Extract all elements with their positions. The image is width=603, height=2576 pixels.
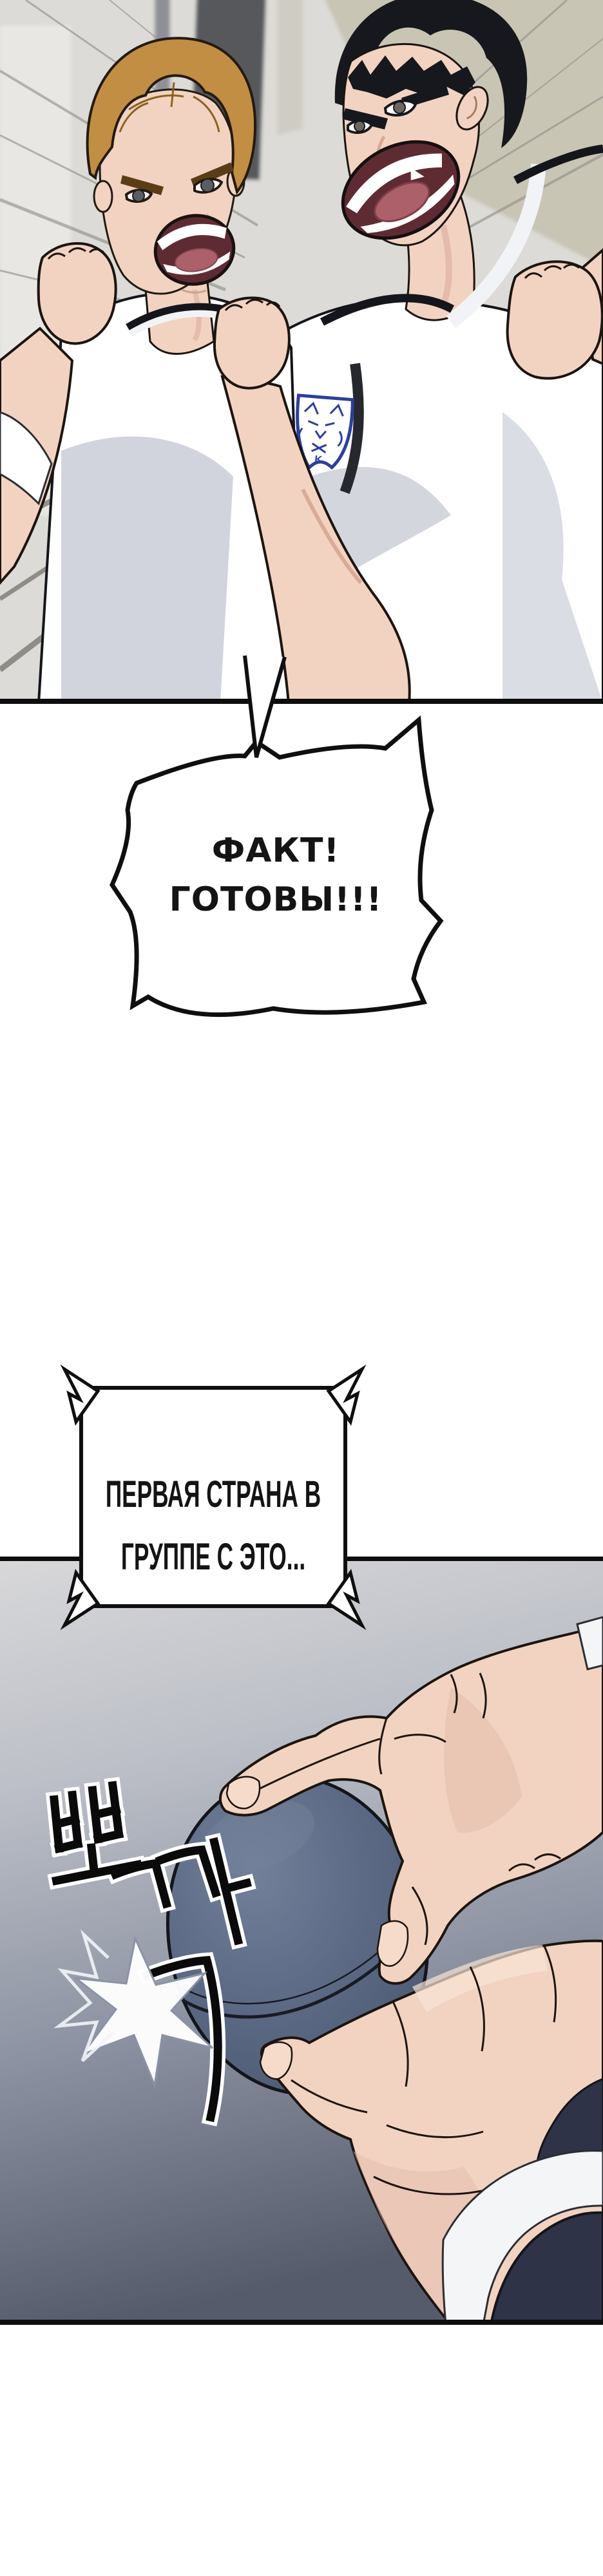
panel-border (0, 2320, 603, 2325)
ear (94, 181, 112, 212)
fingernail (227, 1777, 260, 1808)
caption-box: ПЕРВАЯ СТРАНА В ГРУППЕ С ЭТО... (64, 1369, 362, 1625)
caption-line-1: ПЕРВАЯ СТРАНА В (106, 1474, 321, 1515)
panel-players-cheering: K (0, 0, 603, 710)
caption-line-2: ГРУППЕ С ЭТО... (121, 1537, 305, 1578)
manhwa-page: 뽀깍 (0, 0, 603, 2576)
badge-letter: K (314, 454, 323, 466)
panel-border (0, 699, 603, 704)
speech-line-1: ФАКТ! (212, 831, 340, 870)
panel-hands-ball: 뽀깍 (0, 1557, 603, 2325)
speech-line-2: ГОТОВЫ!!! (169, 880, 383, 919)
comic-artwork: K (0, 0, 603, 2576)
